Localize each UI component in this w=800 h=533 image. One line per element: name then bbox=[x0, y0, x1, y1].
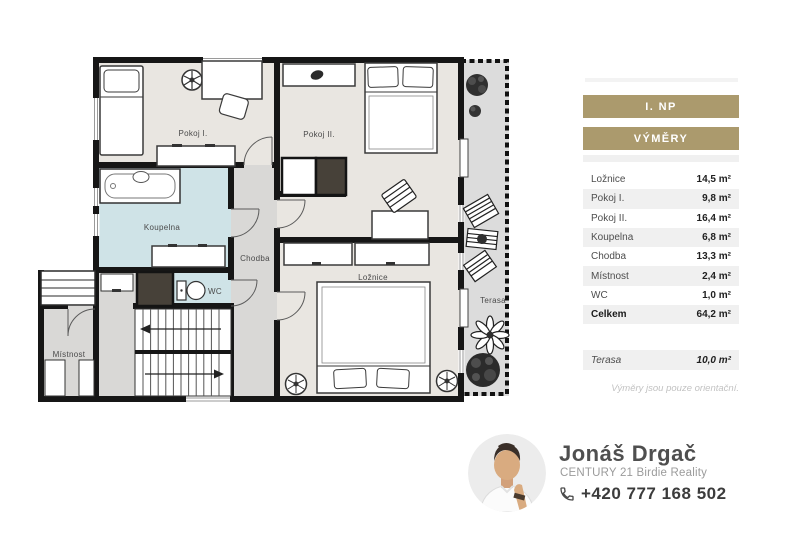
toilet-icon bbox=[177, 281, 205, 300]
row-value: 1,0 m² bbox=[702, 290, 731, 301]
label-wc: WC bbox=[208, 287, 222, 296]
table-row: Chodba 13,3 m² bbox=[583, 247, 739, 266]
ceiling-fan-icon bbox=[182, 70, 202, 90]
wardrobe-icon bbox=[283, 64, 355, 86]
double-bed-icon bbox=[317, 282, 430, 393]
agent-phone-number: +420 777 168 502 bbox=[581, 484, 727, 504]
agent-phone: +420 777 168 502 bbox=[559, 484, 727, 504]
floorplan-flyer: Pokoj I. Pokoj II. Koupelna Chodba WC Lo… bbox=[0, 0, 800, 533]
row-label: Koupelna bbox=[591, 232, 633, 243]
shrub-icon bbox=[466, 74, 488, 96]
table-row: Ložnice 14,5 m² bbox=[583, 170, 739, 189]
shrub-icon bbox=[466, 353, 500, 387]
table-row: Pokoj II. 16,4 m² bbox=[583, 209, 739, 228]
table-row: WC 1,0 m² bbox=[583, 286, 739, 305]
label-loznice: Ložnice bbox=[358, 273, 388, 282]
terasa-label: Terasa bbox=[591, 355, 621, 366]
label-mistnost: Místnost bbox=[53, 350, 86, 359]
stairs-icon bbox=[135, 309, 231, 396]
bathtub-icon bbox=[100, 169, 180, 203]
decorative-stripe bbox=[585, 78, 738, 82]
agent-company: CENTURY 21 Birdie Reality bbox=[560, 467, 707, 479]
table-row: Místnost 2,4 m² bbox=[583, 266, 739, 285]
row-value: 13,3 m² bbox=[697, 251, 731, 262]
row-label: Chodba bbox=[591, 251, 626, 262]
agent-name: Jonáš Drgač bbox=[559, 441, 697, 467]
label-pokoj2: Pokoj II. bbox=[303, 130, 335, 139]
table-row: Pokoj I. 9,8 m² bbox=[583, 189, 739, 208]
single-bed-icon bbox=[100, 66, 143, 155]
table-top-stripe bbox=[583, 155, 739, 162]
ceiling-fan-icon bbox=[437, 371, 458, 392]
total-label: Celkem bbox=[591, 309, 627, 320]
disclaimer-note: Výměry jsou pouze orientační. bbox=[583, 383, 739, 394]
bathroom-cabinet-icon bbox=[152, 244, 225, 267]
row-value: 2,4 m² bbox=[702, 271, 731, 282]
label-terasa: Terasa bbox=[480, 296, 506, 305]
floor-badge: I. NP bbox=[583, 95, 739, 118]
row-value: 6,8 m² bbox=[702, 232, 731, 243]
deck-chair-icon bbox=[466, 228, 498, 249]
table-row-total: Celkem 64,2 m² bbox=[583, 305, 739, 324]
row-label: Místnost bbox=[591, 271, 629, 282]
label-pokoj1: Pokoj I. bbox=[178, 129, 207, 138]
shrub-icon bbox=[469, 105, 481, 117]
row-label: WC bbox=[591, 290, 608, 301]
sideboard-icon bbox=[157, 144, 235, 166]
areas-badge: VÝMĚRY bbox=[583, 127, 739, 150]
row-label: Pokoj II. bbox=[591, 213, 627, 224]
row-value: 16,4 m² bbox=[697, 213, 731, 224]
row-label: Pokoj I. bbox=[591, 193, 624, 204]
label-koupelna: Koupelna bbox=[144, 223, 180, 232]
table-row-terasa: Terasa 10,0 m² bbox=[583, 350, 739, 370]
total-value: 64,2 m² bbox=[697, 309, 731, 320]
row-value: 9,8 m² bbox=[702, 193, 731, 204]
flower-plant-icon bbox=[471, 316, 509, 354]
terasa-value: 10,0 m² bbox=[697, 355, 731, 366]
shelf-unit-icon bbox=[41, 271, 95, 305]
areas-table: Ložnice 14,5 m² Pokoj I. 9,8 m² Pokoj II… bbox=[583, 170, 739, 324]
room-chodba bbox=[231, 165, 277, 399]
table-row: Koupelna 6,8 m² bbox=[583, 228, 739, 247]
ceiling-fan-icon bbox=[286, 374, 307, 395]
wardrobes-icon bbox=[284, 243, 429, 265]
agent-avatar bbox=[468, 434, 546, 512]
row-label: Ložnice bbox=[591, 174, 625, 185]
phone-icon bbox=[559, 486, 575, 502]
label-chodba: Chodba bbox=[240, 254, 270, 263]
row-value: 14,5 m² bbox=[697, 174, 731, 185]
double-bed-icon bbox=[365, 63, 437, 153]
